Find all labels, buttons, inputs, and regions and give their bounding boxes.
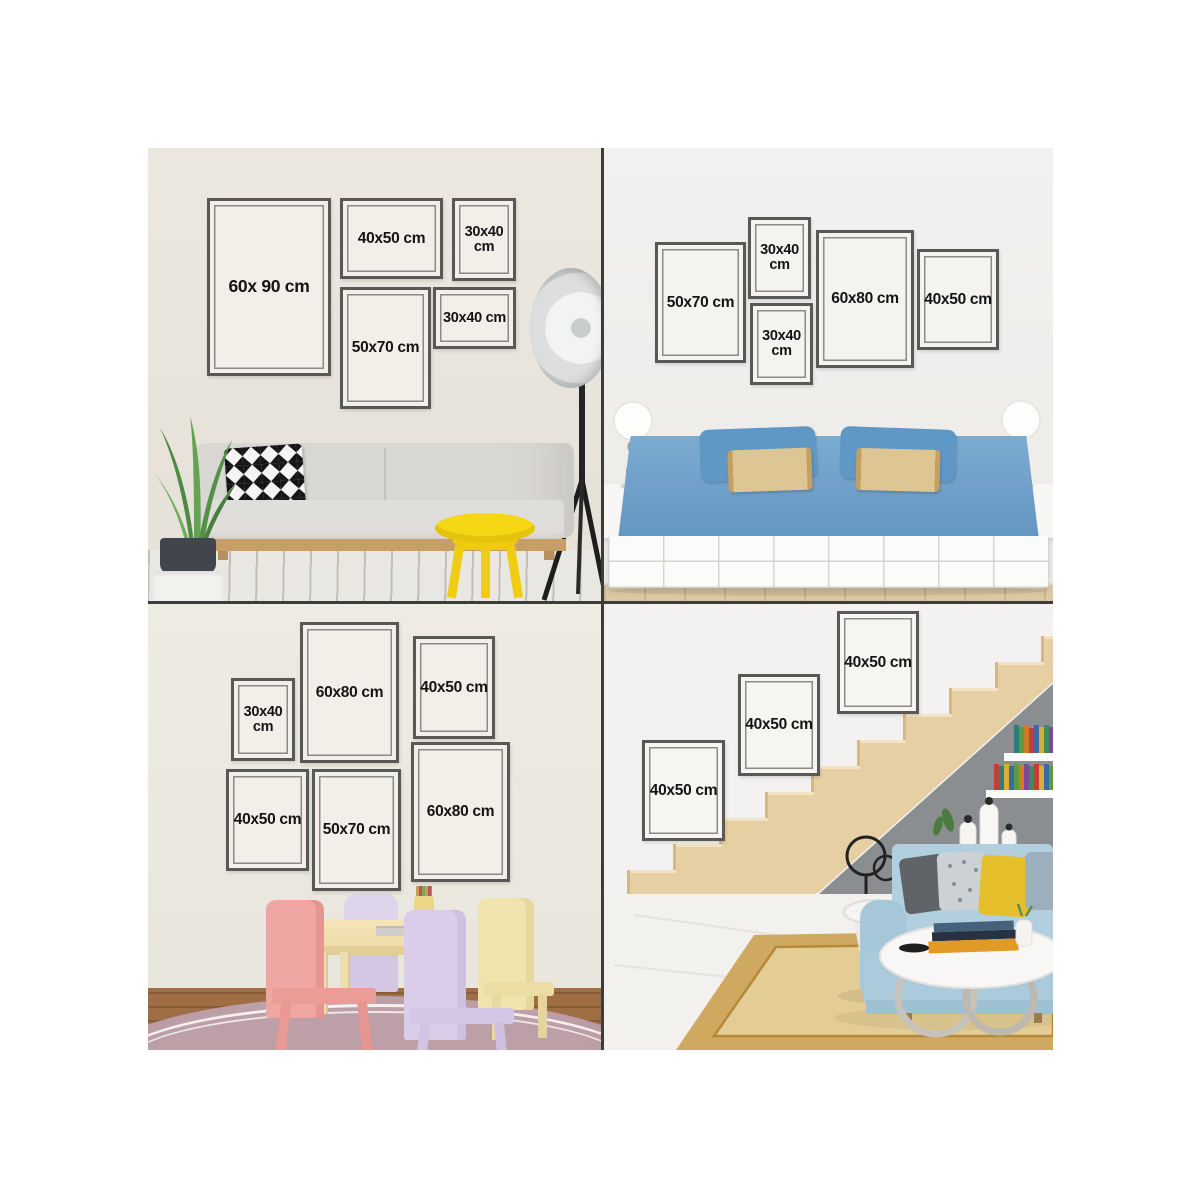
quadrant-kids-room: 30x40 cm 60x80 cm 40x50 cm 40x50 cm 50x7… — [148, 604, 601, 1050]
yellow-pillow — [978, 854, 1032, 917]
table-vase — [1016, 920, 1032, 946]
frame-size-label: 60x80 cm — [425, 802, 496, 822]
frame-size-label: 50x70 cm — [350, 338, 421, 358]
potted-plant-leaves — [148, 410, 240, 546]
collage-seam-vertical — [601, 148, 604, 1050]
size-frame-60x80: 60x80 cm — [816, 230, 914, 368]
collage-seam-horizontal — [148, 601, 1053, 604]
quadrant-living-room: 60x 90 cm 40x50 cm 30x40 cm 50x70 cm 30x… — [148, 148, 601, 601]
frame-size-label: 50x70 cm — [665, 293, 736, 313]
pencil-tips — [416, 886, 432, 896]
frame-size-label: 40x50 cm — [356, 229, 427, 249]
frame-size-label: 40x50 cm — [842, 653, 913, 673]
size-frame-60x80: 60x80 cm — [411, 742, 510, 882]
frame-size-label: 60x80 cm — [314, 683, 385, 703]
white-planter — [153, 571, 223, 601]
size-frame-30x40: 30x40 cm — [452, 198, 516, 281]
frame-size-label: 40x50 cm — [743, 715, 814, 735]
sofa-leg — [218, 551, 228, 560]
bed-mattress-blue — [618, 436, 1039, 540]
frame-size-label: 30x40 cm — [751, 241, 808, 275]
stool-leg — [481, 546, 490, 598]
frame-size-label: 30x40 cm — [753, 327, 810, 361]
book-row — [994, 764, 1053, 790]
size-frame-40x50: 40x50 cm — [837, 611, 919, 714]
sofa-cushion-seam — [384, 448, 386, 504]
black-bowl — [899, 944, 929, 953]
frame-size-label: 60x80 cm — [829, 289, 900, 309]
chair-leg — [538, 994, 547, 1038]
size-frame-30x40: 30x40 cm — [750, 303, 813, 385]
quadrant-staircase: 40x50 cm 40x50 cm 40x50 cm — [604, 604, 1053, 1050]
size-frame-50x70: 50x70 cm — [312, 769, 401, 891]
size-frame-40x50: 40x50 cm — [413, 636, 495, 739]
size-frame-40x50: 40x50 cm — [738, 674, 820, 776]
frame-size-label: 60x 90 cm — [227, 276, 312, 298]
size-frame-50x70: 50x70 cm — [340, 287, 431, 409]
shelf-board — [1004, 753, 1053, 761]
size-frame-30x40: 30x40 cm — [433, 287, 516, 349]
tan-accent-pillow — [727, 448, 812, 493]
studio-lamp-reflector — [530, 268, 601, 388]
book-row — [1014, 725, 1053, 753]
collage-grid: 60x 90 cm 40x50 cm 30x40 cm 50x70 cm 30x… — [148, 148, 1053, 1050]
frame-size-label: 40x50 cm — [648, 781, 719, 801]
size-frame-60x80: 60x80 cm — [300, 622, 399, 763]
size-frame-40x50: 40x50 cm — [642, 740, 725, 841]
sofa-skirt — [866, 1000, 1053, 1014]
plant-pot — [160, 538, 216, 574]
book-stack — [928, 920, 1019, 953]
size-frame-40x50: 40x50 cm — [340, 198, 443, 279]
frame-set-product-collage: 60x 90 cm 40x50 cm 30x40 cm 50x70 cm 30x… — [0, 0, 1200, 1200]
sofa-leg — [544, 551, 554, 560]
size-frame-30x40: 30x40 cm — [748, 217, 811, 299]
yellow-stool-top — [435, 513, 535, 543]
frame-size-label: 30x40 cm — [441, 309, 508, 328]
bed-platform-tufted — [608, 536, 1049, 588]
size-frame-40x50: 40x50 cm — [226, 769, 309, 871]
quadrant-bedroom: 50x70 cm 30x40 cm 30x40 cm 60x80 cm 40x5… — [604, 148, 1053, 601]
tan-accent-pillow — [855, 448, 940, 492]
size-frame-60x90: 60x 90 cm — [207, 198, 331, 376]
frame-size-label: 30x40 cm — [455, 223, 513, 257]
frame-size-label: 50x70 cm — [321, 820, 392, 840]
frame-size-label: 40x50 cm — [232, 810, 303, 830]
grey-blue-pillow — [1025, 852, 1053, 910]
size-frame-30x40: 30x40 cm — [231, 678, 295, 761]
frame-size-label: 40x50 cm — [922, 290, 993, 310]
size-frame-40x50: 40x50 cm — [917, 249, 999, 350]
frame-size-label: 40x50 cm — [418, 678, 489, 698]
size-frame-50x70: 50x70 cm — [655, 242, 746, 363]
shelf-board — [986, 790, 1053, 798]
frame-size-label: 30x40 cm — [234, 703, 292, 737]
